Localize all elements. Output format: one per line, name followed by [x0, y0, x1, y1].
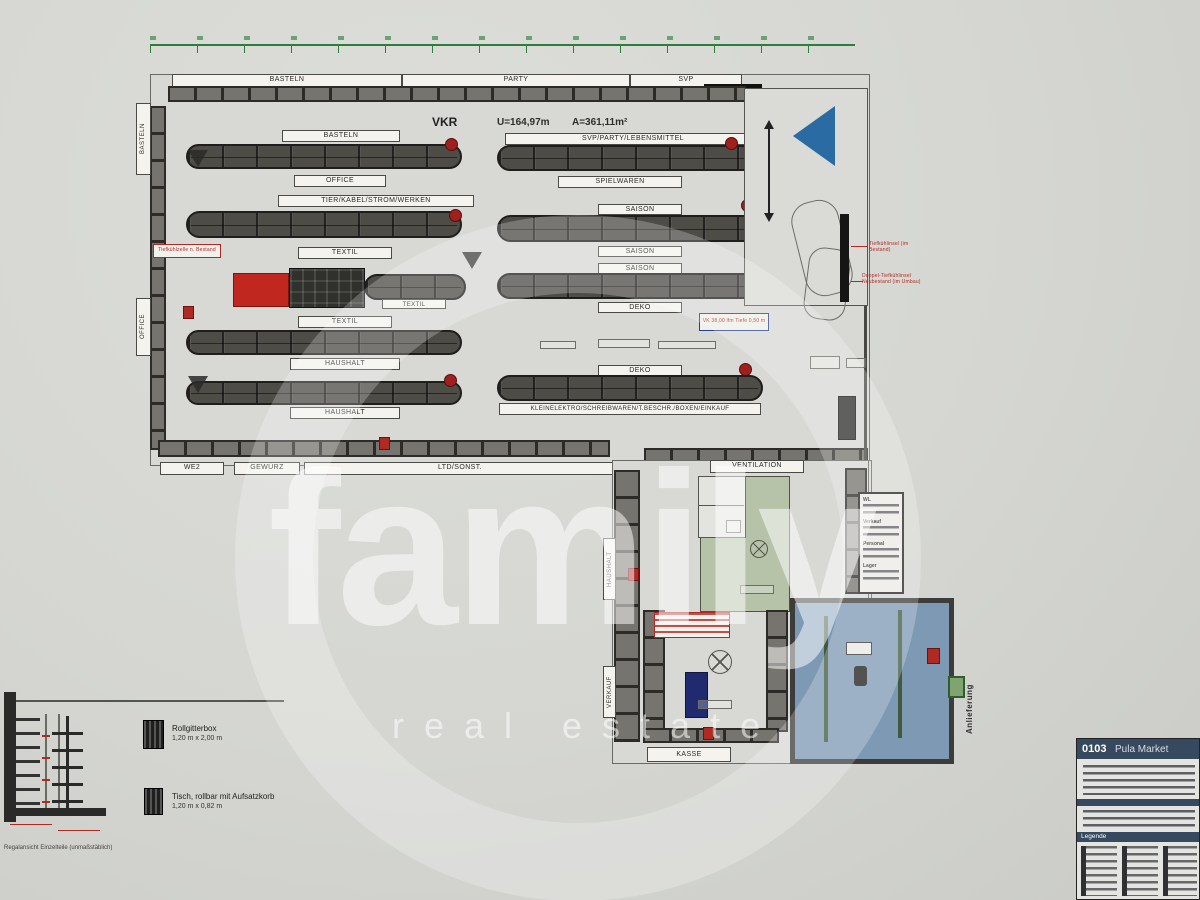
- dimension-arrow: [768, 128, 770, 214]
- ventilation-label: VENTILATION: [710, 460, 804, 473]
- checkout-block: [289, 268, 365, 308]
- aisle-label: HAUSHALT: [290, 358, 400, 370]
- vkr-a-value: A=361,11m²: [572, 117, 627, 128]
- vkr-label: VKR: [432, 115, 457, 129]
- legend-icon-rollbox: [143, 720, 164, 749]
- fixture: [740, 585, 774, 594]
- title-divider: [1077, 799, 1199, 806]
- corridor-label-2: VERKAUF: [603, 666, 616, 718]
- aisle-label: TIER/KABEL/STROM/WERKEN: [278, 195, 474, 207]
- fixture: [598, 339, 650, 348]
- legend-header-bar: Legende: [1077, 832, 1199, 842]
- entrance-arrow-icon: [793, 106, 835, 166]
- elevation-base: [14, 808, 106, 816]
- cone-icon: [462, 252, 482, 269]
- gondola-shelf: [497, 375, 763, 401]
- red-marker: [739, 363, 752, 376]
- legend-column: [1081, 846, 1117, 896]
- fixture: [726, 520, 741, 533]
- hydrant-icon: [379, 437, 390, 450]
- elevation-dim-line: [10, 824, 52, 825]
- legend-item-title: Tisch, rollbar mit Aufsatzkorb: [172, 792, 274, 801]
- freezer-bar: [840, 214, 849, 302]
- warehouse-room: [790, 598, 954, 764]
- title-block: 0103 Pula Market Legende: [1076, 738, 1200, 900]
- gondola-shelf: [186, 381, 462, 405]
- legend-column: [1122, 846, 1158, 896]
- hydrant-icon: [628, 568, 639, 581]
- aisle-label: TEXTIL: [382, 299, 446, 309]
- freezer-red-block: [233, 273, 289, 307]
- title-info-rows: [1083, 765, 1195, 795]
- title-info-rows: [1083, 810, 1195, 828]
- freezer-annotation-2: Doppel-Tiefkühlinsel Neubestand (im Umba…: [862, 273, 924, 293]
- room-shelves-right: [766, 610, 788, 732]
- title-block-header: 0103 Pula Market: [1077, 739, 1199, 759]
- legend-icon-table: [144, 788, 163, 815]
- legend-item-size: 1,20 m x 0,82 m: [172, 803, 222, 810]
- area-info-box: WL Verkauf Personal Lager: [858, 492, 904, 594]
- side-label-basteln: BASTELN: [136, 103, 151, 175]
- info-values: [863, 548, 899, 560]
- elevation-topline: [16, 700, 284, 702]
- aisle-label: TEXTIL: [298, 247, 392, 259]
- aisle-label: TEXTIL: [298, 316, 392, 328]
- dimension-ticks: [150, 36, 855, 40]
- info-values: [863, 570, 899, 582]
- elevation-shelf-arms: [16, 718, 40, 814]
- legend-item-size: 1,20 m x 2,00 m: [172, 735, 222, 742]
- fan-icon: [708, 650, 732, 674]
- gondola-shelf: [497, 215, 763, 242]
- aisle-label: BASTELN: [282, 130, 400, 142]
- legend-item-title: Rollgitterbox: [172, 724, 216, 733]
- fan-icon: [750, 540, 768, 558]
- rack-line: [824, 616, 828, 742]
- side-label-office: OFFICE: [136, 298, 151, 356]
- deko-annotation-box: VK 38,00 lfm Tiefe 0,50 m: [699, 313, 769, 331]
- aisle-label: SAISON: [598, 246, 682, 257]
- gondola-shelf: [364, 274, 466, 300]
- bottom-label: WE2: [160, 462, 224, 475]
- red-marker: [445, 138, 458, 151]
- anlieferung-label: Anlieferung: [964, 650, 978, 734]
- fixture: [810, 356, 840, 369]
- kasse-label: KASSE: [647, 747, 731, 762]
- red-annotation-box: [654, 612, 730, 638]
- elevation-red-ticks: [42, 735, 50, 805]
- fixture: [846, 358, 866, 368]
- aisle-label: SAISON: [598, 204, 682, 215]
- elevation-dim-line: [58, 830, 100, 831]
- dark-fixture: [838, 396, 856, 440]
- red-marker: [449, 209, 462, 222]
- fixture: [658, 341, 716, 349]
- delivery-fixture: [948, 676, 965, 698]
- project-code: 0103: [1082, 743, 1106, 755]
- elevation-caption: Regalansicht Einzelteile (unmaßstäblich): [4, 845, 174, 851]
- cone-icon: [188, 150, 208, 167]
- floorplan-page: BASTELN PARTY SVP BASTELN OFFICE Tiefküh…: [0, 0, 1200, 900]
- hydrant-icon: [927, 648, 940, 664]
- info-values: [863, 526, 899, 538]
- aisle-label: SPIELWAREN: [558, 176, 682, 188]
- fixture: [698, 700, 732, 709]
- aisle-label: HAUSHALT: [290, 407, 400, 419]
- aisle-label: DEKO: [598, 302, 682, 313]
- project-name: Pula Market: [1115, 744, 1168, 755]
- aisle-label: KLEINELEKTRO/SCHREIBWAREN/T.BESCHR./BOXE…: [499, 403, 761, 415]
- elevation-tree-arms: [52, 732, 83, 808]
- table-fixture: [846, 642, 872, 655]
- vkr-u-value: U=164,97m: [497, 117, 550, 128]
- left-red-annotation: Tiefkühlzelle n. Bestand ±0,00: [153, 244, 221, 258]
- hydrant-icon: [183, 306, 194, 319]
- legend-column: [1163, 846, 1197, 896]
- info-row: Lager: [863, 563, 899, 569]
- corridor-label-1: HAUSHALT: [603, 538, 616, 600]
- fixture: [540, 341, 576, 349]
- bottom-label: GEWÜRZ: [234, 462, 300, 475]
- aisle-label: OFFICE: [294, 175, 386, 187]
- corridor-shelves-left: [614, 470, 640, 742]
- red-marker: [444, 374, 457, 387]
- info-values: [863, 504, 899, 516]
- wc-divider: [698, 505, 744, 506]
- dimension-line: [150, 44, 855, 53]
- red-marker: [725, 137, 738, 150]
- dark-fixture: [854, 666, 867, 686]
- gondola-shelf: [186, 144, 462, 169]
- gondola-shelf: [186, 211, 462, 238]
- gondola-shelf: [497, 273, 763, 299]
- wall-left: [150, 106, 166, 450]
- wall-top: [168, 86, 746, 102]
- cone-icon: [188, 376, 208, 393]
- bottom-label: LTD/SONST.: [304, 462, 616, 475]
- blue-fixture: [685, 672, 708, 718]
- elevation-wall: [4, 692, 16, 822]
- gondola-shelf: [497, 145, 763, 171]
- aisle-label: SVP/PARTY/LEBENSMITTEL: [505, 133, 761, 145]
- rack-line: [898, 610, 902, 738]
- freezer-annotation-1: Tiefkühlinsel (im Bestand): [869, 241, 927, 254]
- legend-header: Legende: [1081, 833, 1106, 840]
- info-row: Verkauf: [863, 519, 899, 525]
- hydrant-icon: [703, 727, 714, 740]
- info-row: WL: [863, 497, 899, 503]
- gondola-shelf: [186, 330, 462, 355]
- leader-line: [851, 246, 868, 247]
- info-row: Personal: [863, 541, 899, 547]
